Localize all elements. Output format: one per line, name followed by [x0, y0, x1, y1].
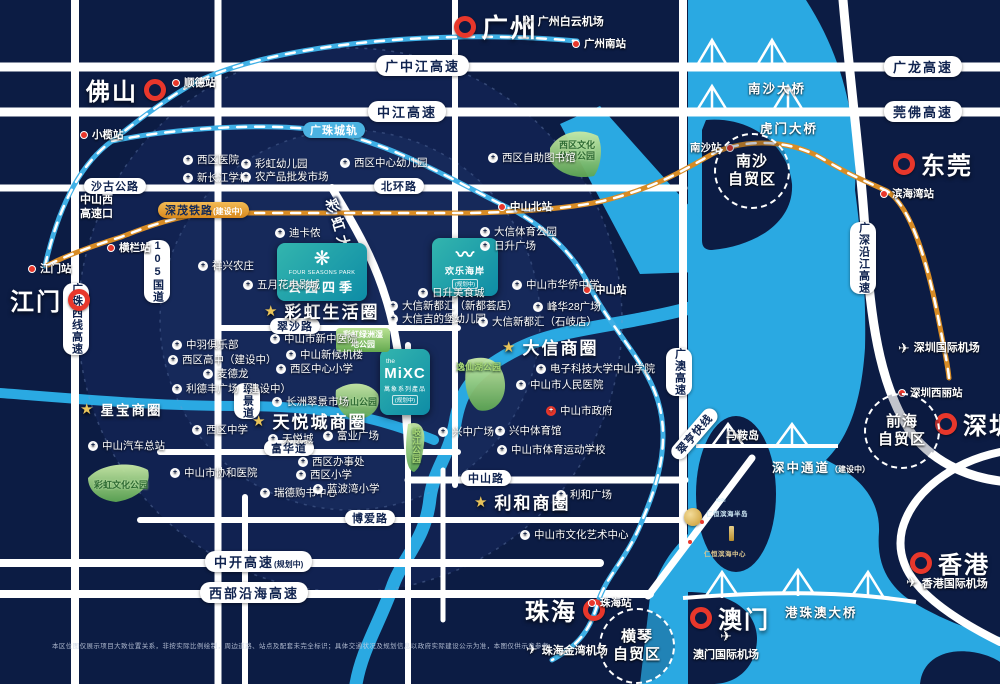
map-pin-icon: [700, 520, 704, 524]
bridge-label-nansha: 南沙大桥: [748, 78, 806, 97]
planning-note: (规划中): [392, 395, 418, 405]
poi-icon: [488, 153, 498, 163]
poi-icon: [198, 261, 208, 271]
poi: 新长江学校: [183, 170, 250, 185]
road-label-boai: 博爱路: [345, 510, 395, 526]
station-dot: [80, 131, 88, 139]
poi-icon: [272, 397, 282, 407]
poi-icon: [546, 406, 556, 416]
poi-icon: [168, 355, 178, 365]
poi-icon: [172, 384, 182, 394]
map-disclaimer: 本区位图仅展示项目大致位置关系，非按实际比例绘制，周边道路、站点及配套未完全标识…: [52, 640, 556, 650]
station-dot: [588, 599, 596, 607]
city-dot-dongguan: [893, 153, 915, 175]
poi: 西区医院: [183, 152, 239, 167]
city-dot-hongkong: [910, 552, 932, 574]
poi-icon: [298, 457, 308, 467]
marina-center-logo-text: 仁恒滨海中心: [704, 548, 746, 558]
poi-icon: [388, 314, 398, 324]
poi-icon: [533, 302, 543, 312]
tower-logo-icon: [729, 526, 734, 541]
poi-icon: [480, 227, 490, 237]
poi: 长洲翠景市场: [272, 394, 349, 409]
four-seasons-park-box: ❋ FOUR SEASONS PARK 公园四季: [277, 243, 367, 301]
airport-macau: ✈澳门国际机场: [686, 628, 766, 662]
mixc-box: the MiXC 萬象系列產品 (规划中): [380, 349, 430, 415]
poi-icon: [536, 364, 546, 374]
rail-label-gzih: 广珠城轨: [303, 122, 365, 138]
station-guangzhou-south: 广州南站: [572, 36, 626, 51]
star-icon: ★: [80, 400, 95, 418]
road-label-guangao: 广澳高速: [666, 348, 692, 396]
airplane-icon: ✈: [906, 574, 918, 591]
biz-daxin: ★大信商圈: [502, 334, 598, 359]
road-label-zhongshan-rd: 中山路: [461, 470, 511, 486]
poi: 西区中心小学: [276, 361, 353, 376]
happy-coast-label: 欢乐海岸: [445, 264, 485, 277]
poi-icon: [520, 530, 530, 540]
poi-icon: [241, 172, 251, 182]
road-label-beihuan: 北环路: [374, 178, 424, 194]
poi: 中羽俱乐部: [172, 337, 239, 352]
airport-baiyun: ✈广州白云机场: [522, 12, 604, 29]
poi-icon: [323, 431, 333, 441]
poi-icon: [260, 488, 270, 498]
poi: 富业广场: [323, 428, 379, 443]
poi-icon: [192, 425, 202, 435]
bridge-label-hzm: 港珠澳大桥: [785, 602, 858, 621]
poi-icon: [296, 470, 306, 480]
park-qijiang: 岐江公园: [410, 427, 423, 463]
rail-label-shenmao: 深茂铁路(建设中): [158, 202, 249, 218]
poi: 麦德龙: [203, 366, 249, 381]
poi: 大信新都汇（石岐店）: [478, 314, 597, 329]
four-seasons-en: FOUR SEASONS PARK: [289, 270, 356, 276]
poi: 西区自助图书馆: [488, 150, 576, 165]
poi: 西区中心幼儿园: [340, 155, 428, 170]
road-label-shagu: 沙古公路: [84, 178, 146, 194]
poi-icon: [275, 228, 285, 238]
four-seasons-logo-icon: ❋: [314, 249, 331, 269]
map-pin-icon: [688, 540, 692, 544]
airport-hongkong: ✈香港国际机场: [906, 574, 988, 591]
road-label-gssyj: 广深沿江高速: [850, 222, 876, 294]
station-xiaolan: 小榄站: [80, 127, 124, 142]
poi: 祥兴农庄: [198, 258, 254, 273]
bridge-label-szt: 深中通道（建设中）: [772, 457, 870, 476]
poi: 五月花电影城: [243, 277, 320, 292]
maanshan-island-label: 马鞍岛: [726, 427, 759, 443]
poi: 中山市华侨中学: [512, 277, 600, 292]
poi-government: 中山市政府: [546, 403, 613, 418]
star-icon: ★: [502, 338, 517, 356]
road-label-gzj: 广中江高速: [376, 55, 469, 76]
city-dot-guangzhou: [454, 16, 476, 38]
zone-hengqin: 横琴自贸区: [599, 608, 675, 684]
poi: 中山市协和医院: [170, 465, 258, 480]
city-foshan: 佛山: [86, 72, 166, 107]
poi: 西区小学: [296, 467, 352, 482]
station-henglan: 横栏站: [107, 240, 151, 255]
poi-icon: [556, 490, 566, 500]
station-dot: [28, 265, 36, 273]
city-shenzhen: 深圳: [935, 406, 1000, 441]
poi-icon: [495, 426, 505, 436]
poi: 中山市人民医院: [516, 377, 604, 392]
biz-caihong: ★彩虹生活圈: [264, 298, 379, 323]
biz-xingbao: ★星宝商圈: [80, 399, 162, 419]
poi-icon: [241, 159, 251, 169]
station-dot: [880, 190, 888, 198]
poi-icon: [313, 484, 323, 494]
poi: 农产品批发市场: [241, 169, 329, 184]
city-dongguan: 东莞: [893, 146, 973, 181]
station-zhuhai: 珠海站: [588, 595, 632, 610]
poi-icon: [512, 280, 522, 290]
star-icon: ★: [474, 493, 489, 511]
poi-icon: [270, 334, 280, 344]
poi-icon: [388, 301, 398, 311]
road-label-gl: 广龙高速: [884, 56, 962, 77]
poi: 日升广场: [480, 238, 536, 253]
poi-icon: [497, 445, 507, 455]
poi-icon: [170, 468, 180, 478]
poi: 蓝波湾小学: [313, 481, 380, 496]
poi: 大信体育公园: [480, 224, 557, 239]
poi: 兴中体育馆: [495, 423, 562, 438]
poi-icon: [478, 317, 488, 327]
zone-nansha: 南沙自贸区: [714, 133, 790, 209]
wave-icon: 〰: [456, 246, 474, 264]
station-dot: [498, 203, 506, 211]
airplane-icon: ✈: [898, 340, 910, 357]
station-jiangmen: 江门站: [28, 261, 72, 276]
city-jiangmen: 江门: [10, 282, 90, 317]
mixc-cn: 萬象系列產品: [384, 384, 426, 393]
poi: 中山新候机楼: [286, 347, 363, 362]
mountain-logo-icon: ≈≈: [716, 496, 726, 505]
poi-icon: [276, 364, 286, 374]
city-dot-macau: [690, 607, 712, 629]
station-shunde: 顺德站: [172, 75, 216, 90]
poi: 利和广场: [556, 487, 612, 502]
city-dot-foshan: [144, 79, 166, 101]
station-binhaiwan: 滨海湾站: [880, 186, 934, 201]
poi: 兴中广场: [438, 424, 494, 439]
airport-shenzhen: ✈深圳国际机场: [898, 340, 972, 357]
road-label-wf: 莞佛高速: [884, 101, 962, 122]
park-chwh: 彩虹文化公园: [94, 480, 148, 491]
airplane-icon: ✈: [720, 628, 732, 645]
star-icon: ★: [252, 412, 267, 430]
bridge-label-humen: 虎门大桥: [760, 118, 818, 137]
renheng-peninsula-logo-text: 仁恒滨海半岛: [706, 508, 748, 518]
poi-icon: [243, 280, 253, 290]
poi: 峰华28广场: [533, 299, 601, 314]
poi: 中山市体育运动学校: [497, 442, 606, 457]
poi-icon: [172, 340, 182, 350]
station-dot: [107, 244, 115, 252]
poi: 西区高中（建设中）: [168, 352, 277, 367]
region-map: 广中江高速 中江高速 广龙高速 莞佛高速 北环路 沙古公路 中山西高速口 深茂铁…: [0, 0, 1000, 684]
poi-icon: [183, 173, 193, 183]
mixc-logo: MiXC: [384, 366, 426, 381]
park-yixianhu: 逸仙湖公园: [456, 360, 501, 373]
poi-icon: [340, 158, 350, 168]
star-icon: ★: [264, 302, 279, 320]
road-label-zj: 中江高速: [368, 101, 446, 122]
poi-icon: [438, 427, 448, 437]
poi-icon: [88, 441, 98, 451]
poi: 西区中学: [192, 422, 248, 437]
poi-icon: [183, 155, 193, 165]
poi-icon: [286, 350, 296, 360]
poi: 迪卡侬: [275, 225, 321, 240]
poi: 大信吉的堡幼儿园: [388, 311, 486, 326]
city-dot-jiangmen: [68, 289, 90, 311]
poi: 中山汽车总站: [88, 438, 165, 453]
station-dot: [572, 40, 580, 48]
zone-qianhai: 前海自贸区: [864, 393, 940, 469]
poi-icon: [203, 369, 213, 379]
poi: 电子科技大学中山学院: [536, 361, 655, 376]
station-dot: [172, 79, 180, 87]
station-zhongshan-north: 中山北站: [498, 199, 552, 214]
airplane-icon: ✈: [522, 12, 534, 29]
poi: 中山市文化艺术中心: [520, 527, 629, 542]
poi-icon: [418, 288, 428, 298]
label-xikou: 中山西高速口: [80, 193, 120, 222]
road-label-zhongkai: 中开高速(规划中): [205, 551, 312, 572]
road-label-xbyh: 西部沿海高速: [200, 582, 308, 603]
poi: 天悦城: [268, 431, 314, 446]
poi-icon: [480, 241, 490, 251]
poi: 中山市新中医院: [270, 331, 358, 346]
poi-icon: [516, 380, 526, 390]
poi-icon: [268, 434, 278, 444]
golden-emblem-logo: [684, 508, 702, 526]
